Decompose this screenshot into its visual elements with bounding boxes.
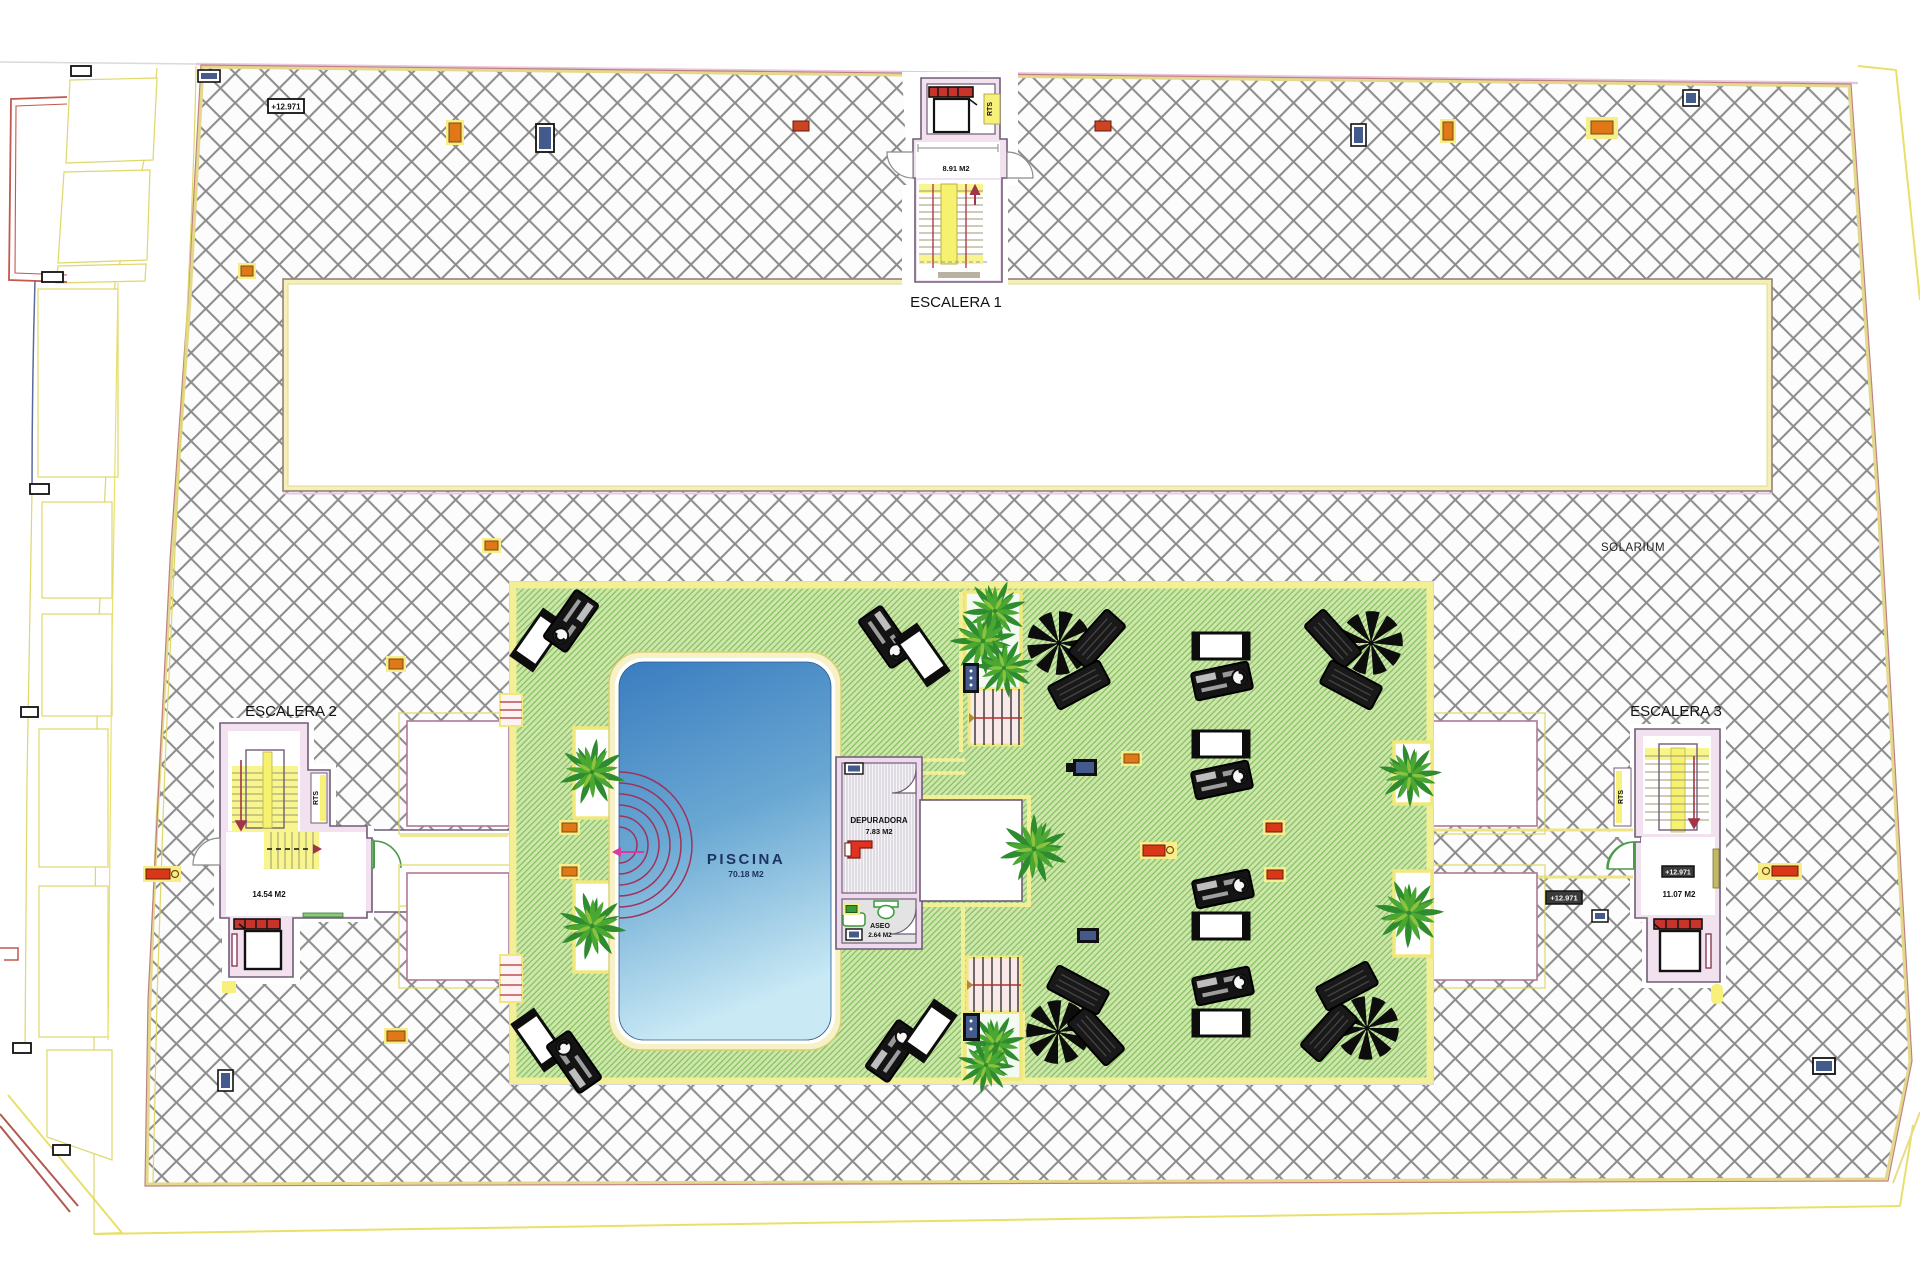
svg-text:ESCALERA 3: ESCALERA 3 — [1630, 703, 1722, 720]
svg-text:+12.971: +12.971 — [271, 103, 301, 112]
svg-text:+12.971: +12.971 — [1550, 894, 1577, 903]
svg-text:11.07 M2: 11.07 M2 — [1663, 890, 1696, 899]
svg-text:14.54 M2: 14.54 M2 — [252, 890, 286, 899]
svg-text:+12.971: +12.971 — [1665, 870, 1691, 877]
svg-text:RTS: RTS — [987, 102, 994, 116]
svg-text:ASEO: ASEO — [870, 923, 890, 930]
svg-text:SOLARIUM: SOLARIUM — [1601, 542, 1665, 554]
svg-text:PISCINA: PISCINA — [707, 851, 785, 868]
svg-text:RTS: RTS — [313, 791, 320, 805]
svg-text:DEPURADORA: DEPURADORA — [850, 816, 908, 825]
svg-text:8.91 M2: 8.91 M2 — [942, 164, 969, 173]
svg-text:70.18 M2: 70.18 M2 — [728, 869, 764, 879]
svg-text:RTS: RTS — [1618, 790, 1625, 804]
svg-text:2.64 M2: 2.64 M2 — [868, 932, 892, 939]
svg-text:7.83 M2: 7.83 M2 — [865, 827, 892, 836]
svg-text:ESCALERA 2: ESCALERA 2 — [245, 703, 337, 720]
svg-text:ESCALERA 1: ESCALERA 1 — [910, 294, 1002, 311]
